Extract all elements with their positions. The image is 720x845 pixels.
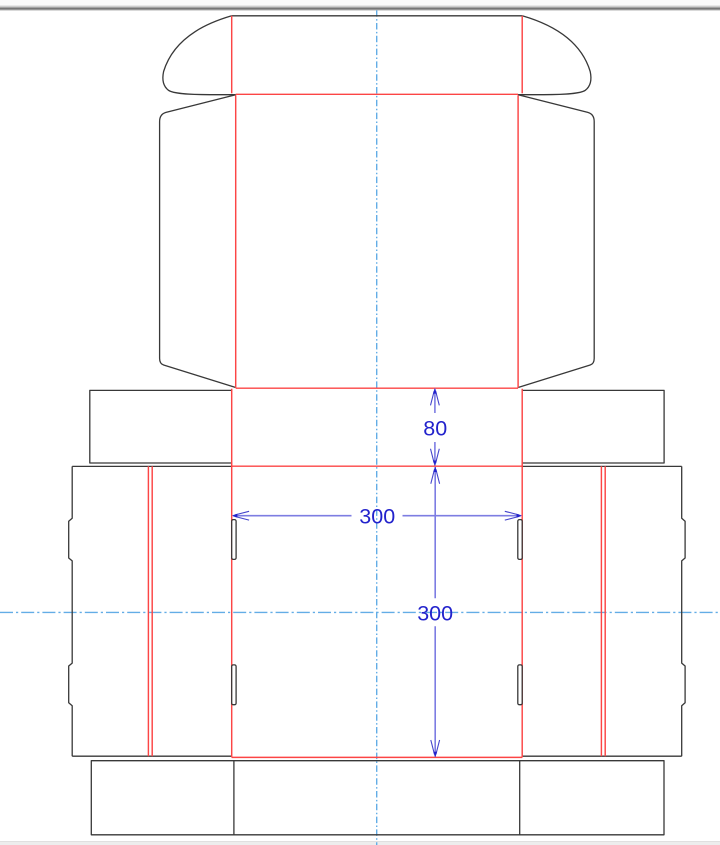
- svg-text:80: 80: [423, 416, 447, 440]
- svg-text:300: 300: [417, 601, 453, 625]
- svg-text:300: 300: [359, 504, 395, 528]
